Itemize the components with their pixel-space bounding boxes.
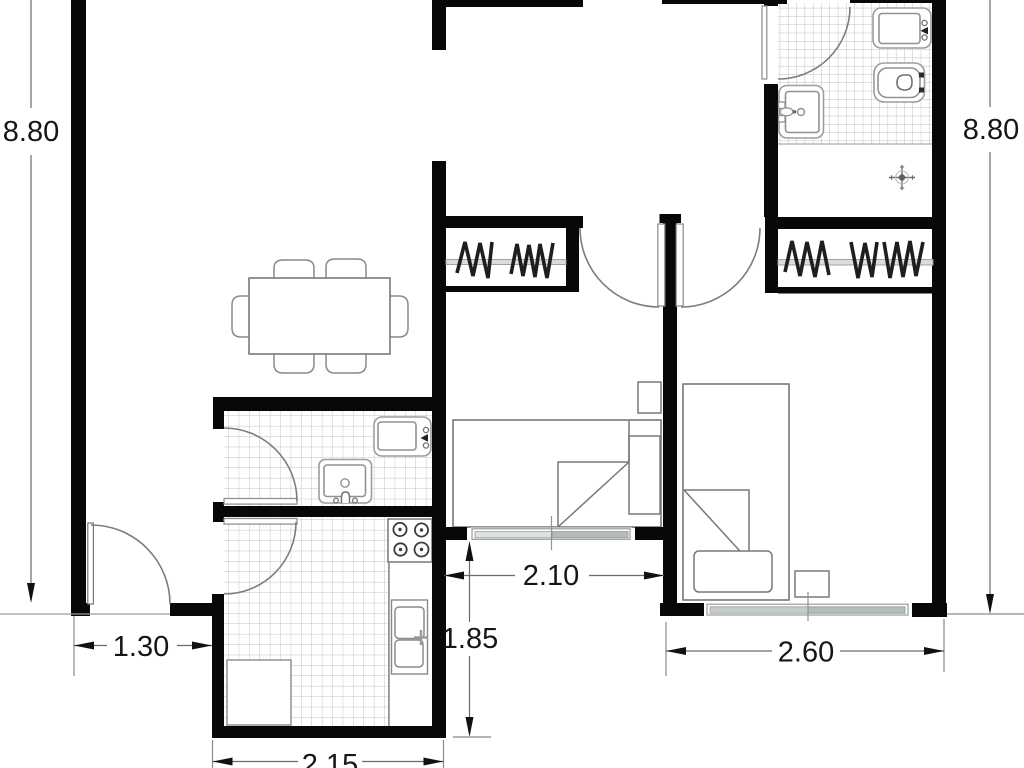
svg-text:1.30: 1.30 bbox=[113, 631, 169, 663]
svg-text:2.60: 2.60 bbox=[778, 637, 834, 669]
svg-text:1.85: 1.85 bbox=[442, 623, 498, 655]
svg-text:2.15: 2.15 bbox=[302, 749, 358, 768]
svg-text:2.10: 2.10 bbox=[523, 560, 579, 592]
svg-text:8.80: 8.80 bbox=[963, 114, 1019, 146]
svg-text:8.80: 8.80 bbox=[3, 116, 59, 148]
